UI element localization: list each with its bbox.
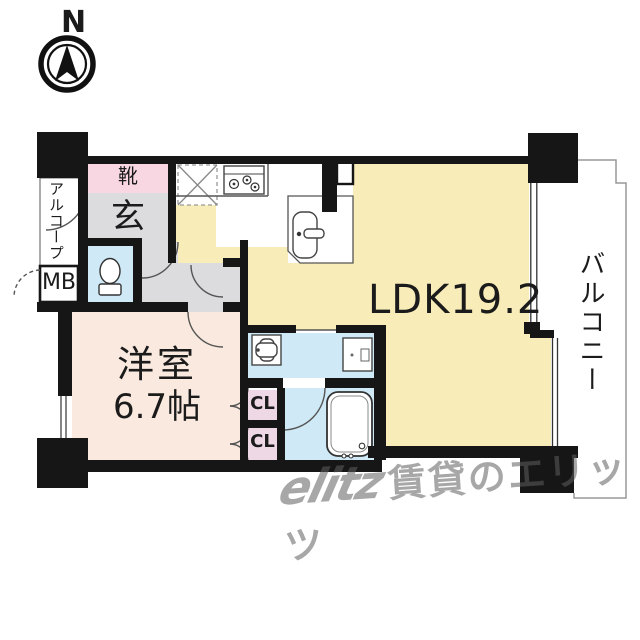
closet-lower-label: CL <box>248 433 277 451</box>
wall-segment <box>78 156 88 304</box>
floor-plan-page: N 靴 玄 アルコープ MB LDK19.2 洋室 6.7帖 CL CL バルコ… <box>0 0 640 640</box>
western-room-name-label: 洋室 <box>72 346 242 383</box>
wall-segment <box>88 156 528 164</box>
wall-segment <box>248 420 277 428</box>
toilet-icon <box>99 259 121 296</box>
wall-segment <box>168 156 176 263</box>
wall-segment <box>37 302 188 312</box>
compass-north-label: N <box>61 8 86 38</box>
ldk-label: LDK19.2 <box>368 280 543 320</box>
wall-segment <box>530 330 554 338</box>
compass-icon <box>41 38 93 90</box>
pillar <box>528 133 578 183</box>
pillar <box>37 438 88 488</box>
compass-needle <box>55 45 79 81</box>
western-room-size-label: 6.7帖 <box>72 390 242 424</box>
meter-box-door-arc <box>14 270 40 296</box>
entrance-label: 玄 <box>88 200 168 234</box>
wall-segment <box>374 325 386 460</box>
pillar <box>37 132 88 178</box>
washing-machine-pan-icon <box>343 338 372 371</box>
ldk-floor <box>386 330 551 446</box>
wall-segment <box>133 242 142 312</box>
refrigerator-space <box>178 165 217 205</box>
closet-upper-label: CL <box>248 395 277 413</box>
wall-segment <box>322 156 337 212</box>
bathtub-icon <box>327 392 372 458</box>
wall-segment <box>240 325 296 333</box>
shoe-cabinet-label: 靴 <box>88 166 168 186</box>
window <box>58 396 72 438</box>
wall-segment <box>277 388 285 460</box>
wall-segment <box>325 378 374 388</box>
alcove-label: アルコープ <box>48 181 63 265</box>
meter-box-label: MB <box>41 272 77 294</box>
wall-segment <box>248 378 283 388</box>
stove-icon <box>224 166 264 194</box>
balcony-label: バルコニー <box>577 250 603 410</box>
watermark-logo: elitz <box>274 454 389 516</box>
wash-basin-icon <box>252 335 281 365</box>
wall-segment <box>58 312 72 396</box>
